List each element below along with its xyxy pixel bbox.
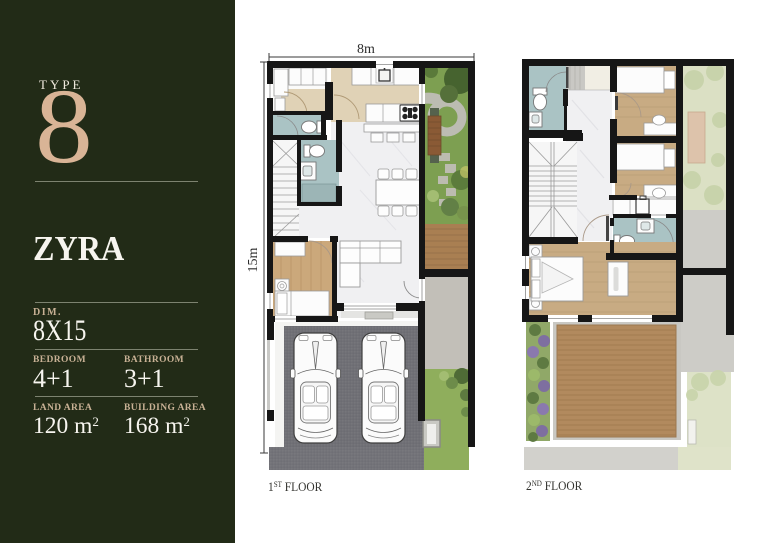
svg-text:15m: 15m: [246, 247, 261, 272]
svg-text:8m: 8m: [357, 42, 375, 57]
